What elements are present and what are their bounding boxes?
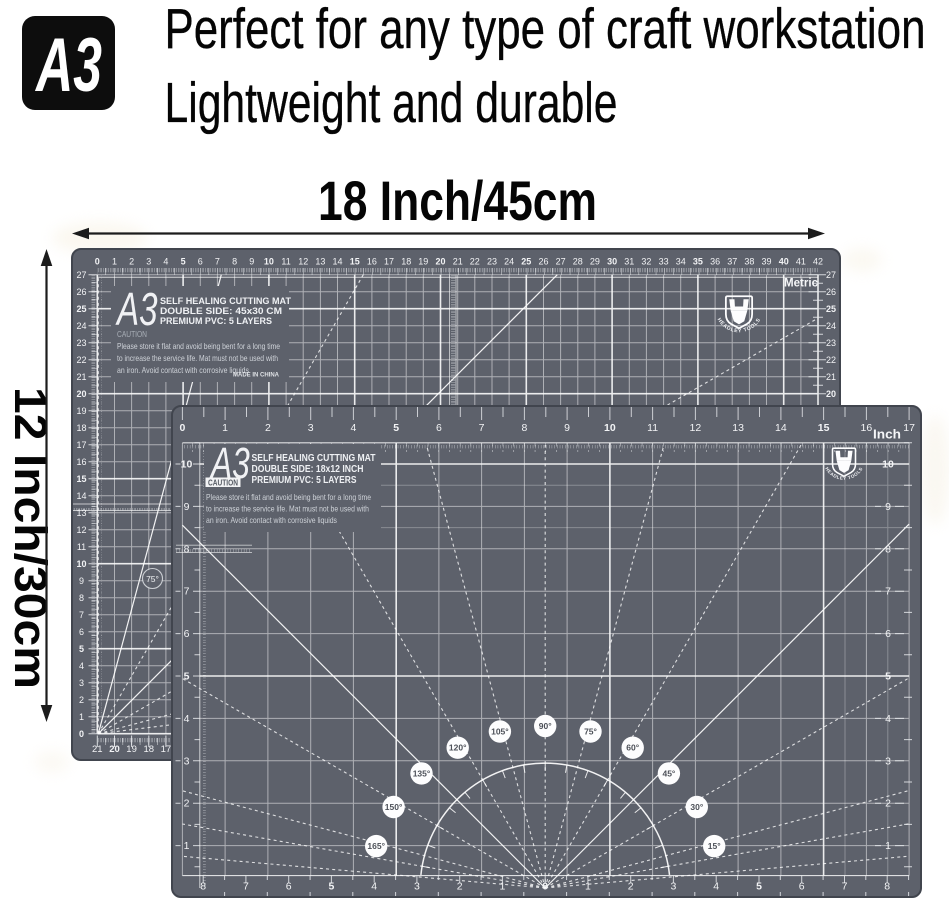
svg-text:8: 8 bbox=[521, 422, 527, 434]
svg-text:36: 36 bbox=[710, 257, 720, 267]
svg-text:2: 2 bbox=[129, 257, 134, 267]
svg-text:8: 8 bbox=[79, 593, 84, 603]
svg-text:3: 3 bbox=[184, 755, 190, 767]
svg-text:24: 24 bbox=[76, 321, 86, 331]
svg-text:4: 4 bbox=[184, 713, 190, 725]
svg-text:25: 25 bbox=[826, 304, 836, 314]
svg-text:16: 16 bbox=[367, 257, 377, 267]
svg-text:1: 1 bbox=[112, 257, 117, 267]
svg-text:120°: 120° bbox=[449, 743, 467, 753]
svg-text:4: 4 bbox=[885, 713, 891, 725]
svg-text:2: 2 bbox=[79, 695, 84, 705]
svg-text:10: 10 bbox=[264, 257, 274, 267]
svg-text:6: 6 bbox=[79, 627, 84, 637]
svg-text:5: 5 bbox=[393, 422, 399, 434]
svg-text:105°: 105° bbox=[491, 727, 509, 737]
svg-text:20: 20 bbox=[76, 389, 86, 399]
svg-text:0: 0 bbox=[179, 422, 185, 434]
svg-text:25: 25 bbox=[521, 257, 531, 267]
svg-text:2: 2 bbox=[885, 798, 891, 810]
svg-text:5: 5 bbox=[181, 257, 186, 267]
svg-text:1: 1 bbox=[222, 422, 228, 434]
svg-text:to increase the service life.: to increase the service life. Mat must n… bbox=[206, 504, 369, 514]
svg-text:4: 4 bbox=[350, 422, 356, 434]
svg-text:26: 26 bbox=[826, 287, 836, 297]
svg-text:165°: 165° bbox=[367, 841, 385, 851]
svg-text:8: 8 bbox=[232, 257, 237, 267]
svg-text:A3: A3 bbox=[35, 23, 102, 108]
svg-text:29: 29 bbox=[590, 257, 600, 267]
svg-text:Inch: Inch bbox=[873, 427, 901, 442]
svg-text:18: 18 bbox=[401, 257, 411, 267]
svg-text:22: 22 bbox=[826, 355, 836, 365]
svg-text:Please store it flat and avoid: Please store it flat and avoid being ben… bbox=[117, 341, 280, 351]
svg-text:16: 16 bbox=[861, 422, 873, 434]
svg-text:7: 7 bbox=[885, 586, 891, 598]
svg-text:10: 10 bbox=[76, 559, 86, 569]
svg-text:A3: A3 bbox=[115, 285, 157, 335]
svg-text:39: 39 bbox=[761, 257, 771, 267]
svg-text:12: 12 bbox=[298, 257, 308, 267]
svg-text:18 Inch/45cm: 18 Inch/45cm bbox=[318, 169, 597, 232]
svg-text:19: 19 bbox=[418, 257, 428, 267]
svg-text:19: 19 bbox=[76, 406, 86, 416]
svg-text:0: 0 bbox=[79, 729, 84, 739]
svg-text:PREMIUM PVC: 5 LAYERS: PREMIUM PVC: 5 LAYERS bbox=[252, 474, 357, 486]
svg-text:13: 13 bbox=[315, 257, 325, 267]
svg-text:27: 27 bbox=[76, 270, 86, 280]
svg-text:24: 24 bbox=[504, 257, 514, 267]
svg-text:18: 18 bbox=[76, 423, 86, 433]
svg-text:7: 7 bbox=[215, 257, 220, 267]
svg-text:16: 16 bbox=[76, 457, 86, 467]
svg-text:PREMIUM PVC: 5 LAYERS: PREMIUM PVC: 5 LAYERS bbox=[160, 316, 272, 327]
svg-text:23: 23 bbox=[76, 338, 86, 348]
svg-text:Perfect for any type of craft: Perfect for any type of craft workstatio… bbox=[165, 0, 926, 61]
svg-text:7: 7 bbox=[79, 610, 84, 620]
svg-text:75°: 75° bbox=[146, 574, 159, 584]
svg-text:1: 1 bbox=[184, 840, 190, 852]
svg-text:17: 17 bbox=[903, 422, 915, 434]
svg-text:24: 24 bbox=[826, 321, 836, 331]
svg-text:6: 6 bbox=[184, 628, 190, 640]
svg-text:150°: 150° bbox=[385, 802, 403, 812]
svg-text:26: 26 bbox=[538, 257, 548, 267]
svg-text:12: 12 bbox=[690, 422, 702, 434]
svg-text:11: 11 bbox=[281, 257, 290, 267]
svg-text:21: 21 bbox=[453, 257, 463, 267]
svg-text:Metric: Metric bbox=[784, 278, 819, 290]
svg-text:6: 6 bbox=[198, 257, 203, 267]
svg-text:21: 21 bbox=[76, 372, 86, 382]
svg-text:37: 37 bbox=[727, 257, 737, 267]
svg-text:11: 11 bbox=[647, 422, 658, 434]
svg-text:22: 22 bbox=[470, 257, 480, 267]
svg-text:4: 4 bbox=[163, 257, 168, 267]
svg-text:an iron. Avoid contact with co: an iron. Avoid contact with corrosive li… bbox=[206, 515, 337, 525]
svg-text:38: 38 bbox=[744, 257, 754, 267]
svg-text:11: 11 bbox=[77, 542, 86, 552]
svg-text:2: 2 bbox=[265, 422, 271, 434]
svg-text:23: 23 bbox=[487, 257, 497, 267]
svg-text:1: 1 bbox=[885, 840, 891, 852]
svg-text:21: 21 bbox=[826, 372, 836, 382]
svg-text:42: 42 bbox=[813, 257, 823, 267]
svg-text:10: 10 bbox=[181, 459, 193, 471]
svg-text:12: 12 bbox=[76, 525, 86, 535]
svg-text:15: 15 bbox=[76, 474, 86, 484]
svg-text:9: 9 bbox=[79, 576, 84, 586]
svg-text:9: 9 bbox=[564, 422, 570, 434]
svg-text:26: 26 bbox=[76, 287, 86, 297]
svg-text:6: 6 bbox=[436, 422, 442, 434]
svg-text:5: 5 bbox=[79, 644, 84, 654]
svg-text:3: 3 bbox=[79, 678, 84, 688]
svg-text:8: 8 bbox=[885, 543, 891, 555]
svg-text:17: 17 bbox=[76, 440, 86, 450]
svg-text:33: 33 bbox=[659, 257, 669, 267]
svg-text:6: 6 bbox=[885, 628, 891, 640]
svg-text:60°: 60° bbox=[626, 743, 639, 753]
svg-text:14: 14 bbox=[332, 257, 342, 267]
svg-text:14: 14 bbox=[775, 422, 787, 434]
svg-text:7: 7 bbox=[479, 422, 485, 434]
svg-text:9: 9 bbox=[885, 501, 891, 513]
svg-text:MADE IN CHINA: MADE IN CHINA bbox=[233, 373, 280, 379]
svg-text:22: 22 bbox=[76, 355, 86, 365]
svg-text:3: 3 bbox=[308, 422, 314, 434]
svg-text:31: 31 bbox=[624, 257, 634, 267]
svg-text:15: 15 bbox=[350, 257, 360, 267]
svg-text:23: 23 bbox=[826, 338, 836, 348]
svg-text:27: 27 bbox=[556, 257, 566, 267]
svg-text:17: 17 bbox=[384, 257, 394, 267]
svg-text:30: 30 bbox=[607, 257, 617, 267]
svg-text:12 Inch/30cm: 12 Inch/30cm bbox=[5, 387, 56, 689]
svg-text:3: 3 bbox=[146, 257, 151, 267]
svg-text:27: 27 bbox=[826, 270, 836, 280]
svg-text:10: 10 bbox=[882, 459, 894, 471]
svg-text:15°: 15° bbox=[708, 841, 721, 851]
svg-text:32: 32 bbox=[641, 257, 651, 267]
svg-text:14: 14 bbox=[76, 491, 86, 501]
svg-text:45°: 45° bbox=[662, 768, 675, 778]
svg-text:75°: 75° bbox=[584, 727, 597, 737]
svg-text:41: 41 bbox=[796, 257, 806, 267]
svg-text:15: 15 bbox=[818, 422, 830, 434]
svg-text:28: 28 bbox=[573, 257, 583, 267]
svg-text:7: 7 bbox=[184, 586, 190, 598]
svg-text:4: 4 bbox=[79, 661, 84, 671]
svg-text:an iron. Avoid contact with co: an iron. Avoid contact with corrosive li… bbox=[117, 365, 249, 375]
svg-text:1: 1 bbox=[79, 712, 84, 722]
svg-text:9: 9 bbox=[184, 501, 190, 513]
svg-text:90°: 90° bbox=[539, 721, 552, 731]
svg-text:30°: 30° bbox=[690, 802, 703, 812]
svg-text:9: 9 bbox=[249, 257, 254, 267]
svg-text:20: 20 bbox=[435, 257, 445, 267]
svg-text:34: 34 bbox=[676, 257, 686, 267]
svg-text:35: 35 bbox=[693, 257, 703, 267]
svg-text:Please store it flat and avoid: Please store it flat and avoid being ben… bbox=[206, 492, 371, 502]
svg-text:5: 5 bbox=[184, 671, 190, 683]
svg-text:CAUTION: CAUTION bbox=[208, 478, 238, 487]
svg-text:13: 13 bbox=[732, 422, 744, 434]
svg-text:5: 5 bbox=[885, 671, 891, 683]
svg-text:CAUTION: CAUTION bbox=[117, 329, 147, 339]
svg-text:20: 20 bbox=[826, 389, 836, 399]
svg-text:2: 2 bbox=[184, 798, 190, 810]
svg-text:25: 25 bbox=[76, 304, 86, 314]
svg-text:40: 40 bbox=[779, 257, 789, 267]
svg-text:10: 10 bbox=[604, 422, 616, 434]
svg-text:3: 3 bbox=[885, 755, 891, 767]
svg-text:0: 0 bbox=[95, 257, 100, 267]
svg-text:Lightweight and durable: Lightweight and durable bbox=[165, 71, 618, 135]
svg-text:to increase the service life.: to increase the service life. Mat must n… bbox=[117, 353, 278, 363]
svg-text:135°: 135° bbox=[413, 768, 431, 778]
